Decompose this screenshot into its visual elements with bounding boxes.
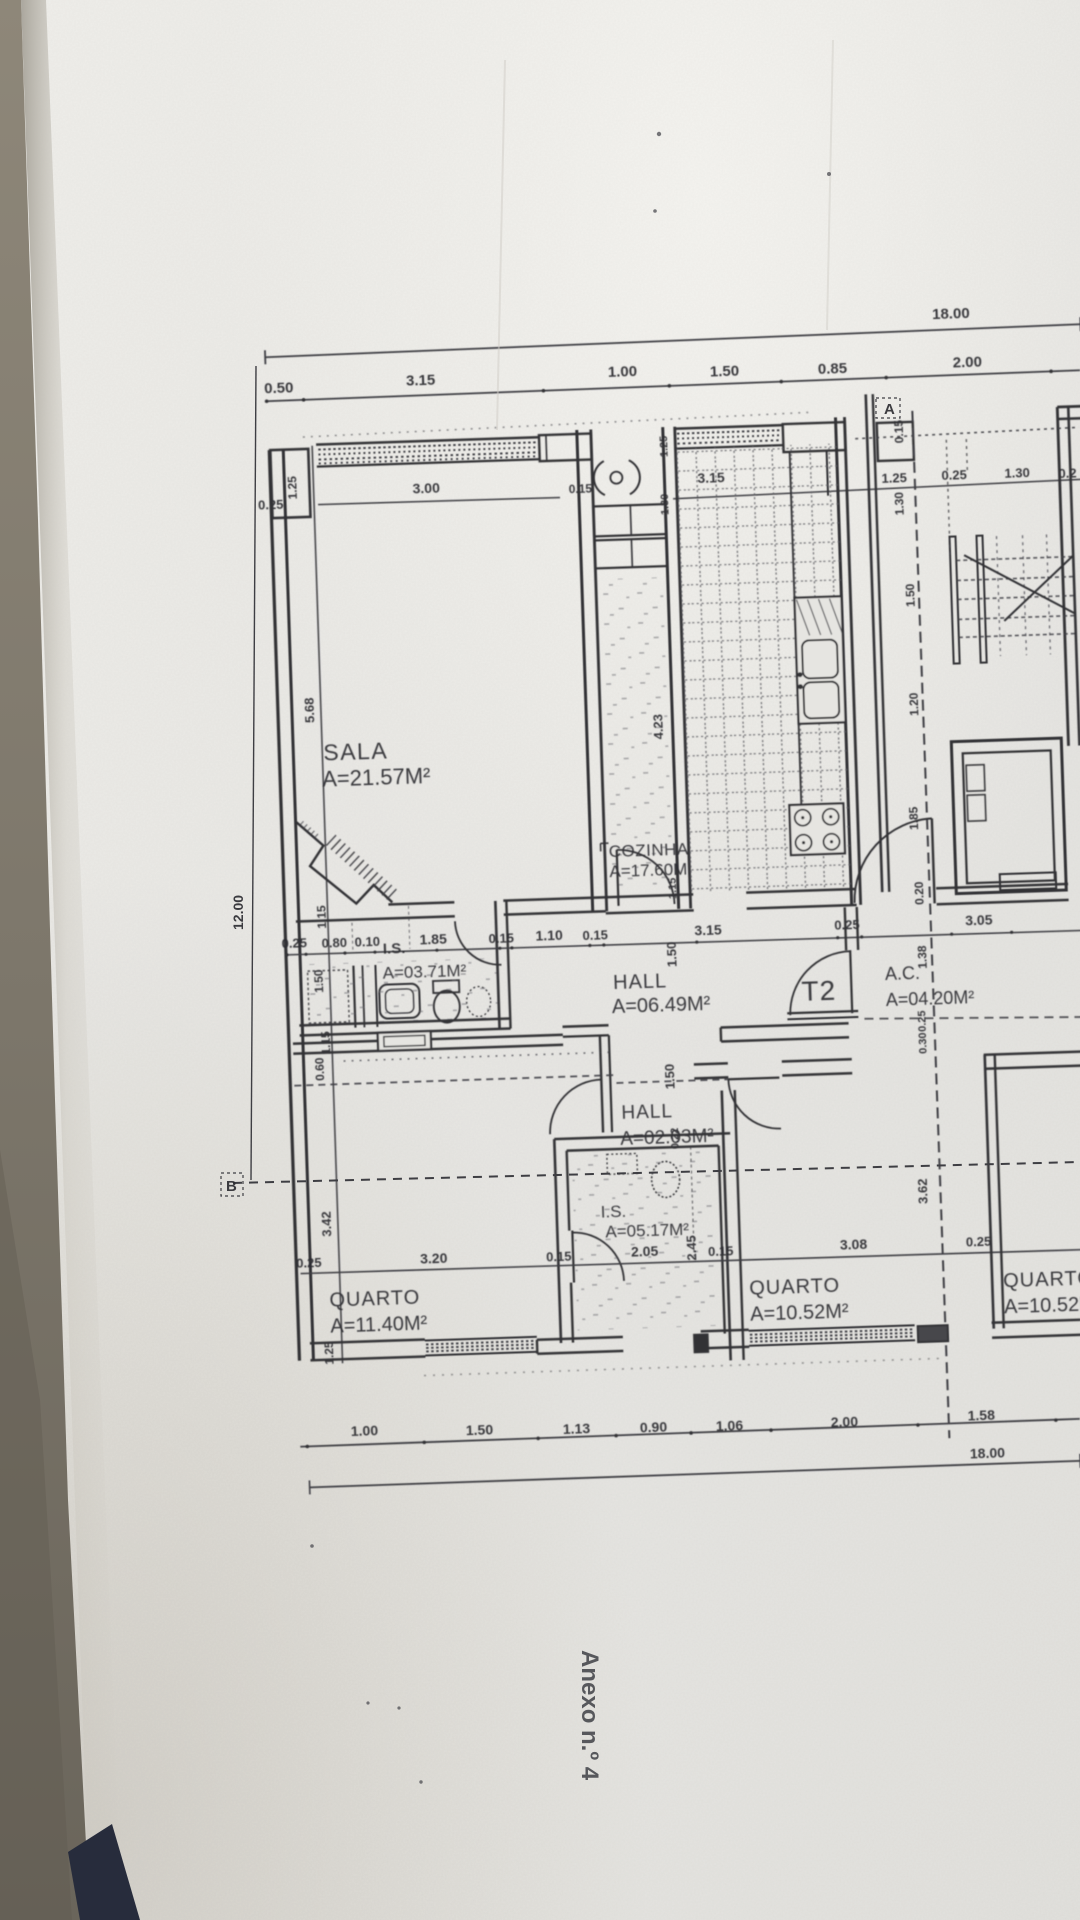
svg-text:3.20: 3.20: [420, 1250, 448, 1267]
svg-text:1.25: 1.25: [881, 470, 907, 486]
svg-text:12.00: 12.00: [230, 895, 246, 930]
svg-text:0.15: 0.15: [568, 481, 592, 496]
svg-text:1.06: 1.06: [716, 1417, 744, 1434]
svg-text:0.50: 0.50: [264, 379, 294, 397]
svg-text:1.50: 1.50: [903, 583, 918, 607]
svg-text:A=10.52M²: A=10.52M²: [1004, 1293, 1080, 1318]
svg-text:I.S.: I.S.: [600, 1202, 626, 1222]
svg-text:2.05: 2.05: [631, 1243, 659, 1260]
svg-text:1.50: 1.50: [710, 363, 740, 381]
svg-text:3.62: 3.62: [915, 1178, 931, 1204]
svg-text:0.20: 0.20: [912, 881, 927, 905]
svg-text:2.45: 2.45: [684, 1235, 700, 1261]
svg-text:A: A: [884, 401, 895, 418]
svg-text:0.80: 0.80: [321, 935, 347, 951]
svg-text:1.30: 1.30: [892, 491, 907, 515]
svg-text:2.00: 2.00: [831, 1413, 859, 1430]
svg-text:B: B: [226, 1178, 237, 1195]
svg-text:0.25: 0.25: [941, 467, 967, 483]
svg-text:0.10: 0.10: [354, 934, 380, 950]
svg-text:Anexo n.º 4: Anexo n.º 4: [576, 1650, 603, 1781]
svg-text:1.10: 1.10: [535, 927, 563, 944]
svg-text:0.15: 0.15: [488, 930, 514, 946]
svg-text:0.15: 0.15: [546, 1249, 572, 1265]
svg-text:QUARTO: QUARTO: [749, 1275, 841, 1300]
svg-text:1.85: 1.85: [419, 931, 447, 948]
svg-text:3.42: 3.42: [319, 1211, 335, 1237]
svg-text:1.30: 1.30: [1004, 465, 1030, 481]
svg-text:1.00: 1.00: [608, 363, 638, 381]
svg-text:A=05.17M²: A=05.17M²: [605, 1220, 690, 1242]
svg-text:1.50: 1.50: [664, 942, 680, 968]
svg-text:2.00: 2.00: [952, 354, 982, 372]
svg-text:0.15: 0.15: [892, 419, 907, 443]
svg-text:0.90: 0.90: [640, 1419, 668, 1436]
svg-text:A.C.: A.C.: [885, 963, 921, 984]
svg-text:0.25: 0.25: [296, 1255, 322, 1271]
svg-text:1.25: 1.25: [322, 1341, 337, 1365]
svg-text:A=11.40M²: A=11.40M²: [330, 1312, 428, 1337]
svg-text:0.25: 0.25: [966, 1234, 992, 1250]
svg-text:A=21.57M²: A=21.57M²: [322, 763, 431, 792]
svg-text:3.15: 3.15: [406, 372, 436, 390]
svg-text:1.50: 1.50: [466, 1421, 494, 1438]
svg-text:I.S.: I.S.: [383, 940, 406, 958]
svg-text:HALL: HALL: [613, 970, 668, 994]
svg-text:1.15: 1.15: [314, 905, 329, 929]
svg-text:A=10.52M²: A=10.52M²: [750, 1300, 849, 1325]
svg-text:1.58: 1.58: [967, 1407, 995, 1424]
svg-text:QUARTO: QUARTO: [1003, 1267, 1080, 1292]
svg-text:1.13: 1.13: [563, 1420, 591, 1437]
svg-text:A=06.49M²: A=06.49M²: [612, 993, 711, 1018]
svg-text:1.00: 1.00: [351, 1422, 379, 1439]
svg-text:1.25: 1.25: [285, 476, 300, 500]
svg-text:QUARTO: QUARTO: [329, 1287, 421, 1312]
svg-text:1.50: 1.50: [662, 1064, 678, 1090]
svg-text:18.00: 18.00: [932, 305, 970, 323]
svg-text:0.60: 0.60: [312, 1057, 327, 1081]
svg-text:HALL: HALL: [621, 1101, 673, 1124]
svg-text:0.30: 0.30: [917, 1032, 930, 1054]
svg-text:3.05: 3.05: [965, 911, 993, 928]
svg-text:0.25: 0.25: [281, 935, 307, 951]
svg-text:1.20: 1.20: [907, 692, 922, 716]
svg-text:3.15: 3.15: [694, 921, 722, 938]
svg-text:3.00: 3.00: [412, 480, 440, 497]
svg-text:T2: T2: [801, 975, 837, 1007]
svg-text:SALA: SALA: [323, 737, 389, 765]
svg-text:1.85: 1.85: [906, 806, 921, 830]
svg-text:3.08: 3.08: [840, 1236, 868, 1253]
svg-text:0.15: 0.15: [582, 927, 608, 943]
svg-text:18.00: 18.00: [970, 1444, 1006, 1461]
svg-text:5.68: 5.68: [301, 697, 317, 723]
svg-text:1.25: 1.25: [658, 435, 671, 457]
svg-text:0.25: 0.25: [916, 1010, 929, 1032]
svg-text:0.85: 0.85: [818, 360, 848, 378]
svg-text:0.15: 0.15: [708, 1243, 734, 1259]
svg-text:A=04.20M²: A=04.20M²: [885, 987, 974, 1010]
